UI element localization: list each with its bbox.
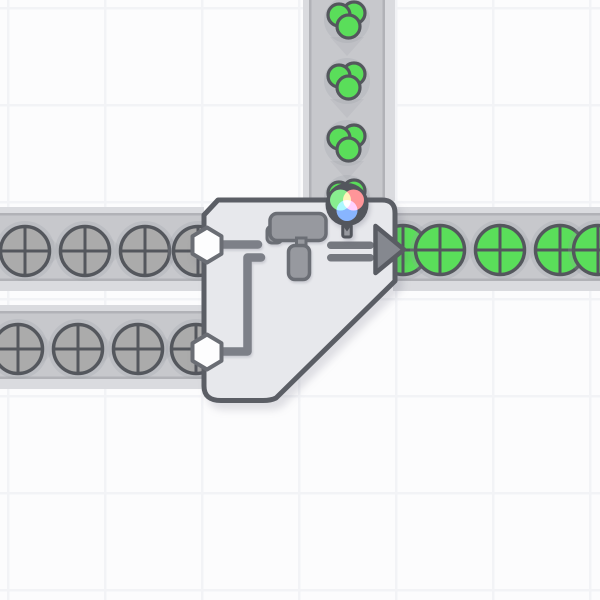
item-green-cluster [324, 120, 370, 166]
input-port-hexagon-bottom [193, 335, 222, 370]
wheel-center-white [344, 201, 350, 207]
item-green-cluster [324, 58, 370, 104]
item-uncolored-circle [55, 221, 115, 281]
item-green-circle [410, 220, 470, 280]
game-viewport[interactable] [0, 0, 600, 600]
paint-roller-handle [289, 246, 310, 280]
input-port-hexagon-top [193, 228, 222, 263]
item-uncolored-circle [115, 221, 175, 281]
item-uncolored-circle [48, 319, 108, 379]
paint-roller-body [270, 214, 326, 241]
item-green-circle [470, 220, 530, 280]
painter-building[interactable] [193, 200, 405, 401]
item-uncolored-circle [108, 319, 168, 379]
